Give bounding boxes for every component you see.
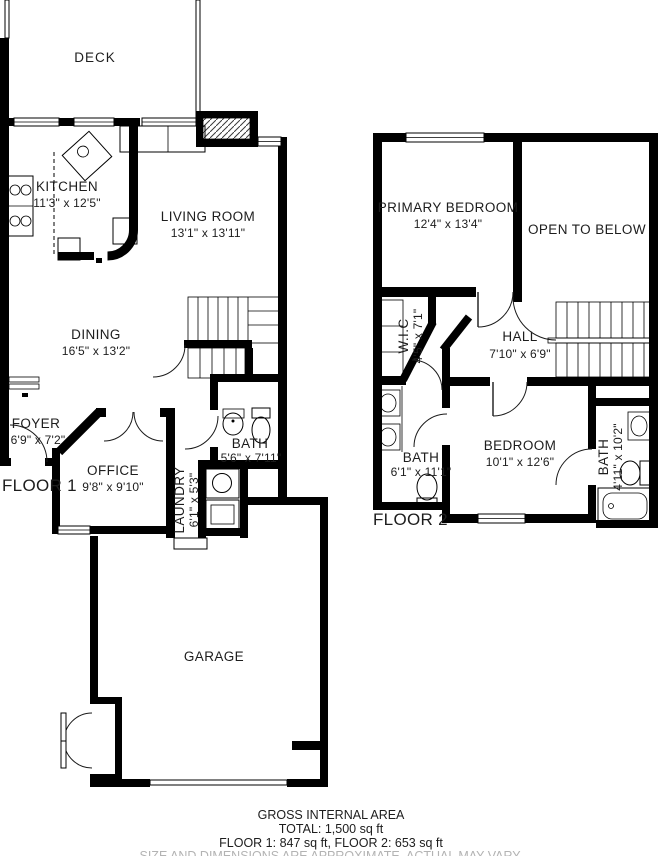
kitchen-label: KITCHEN xyxy=(36,179,98,194)
primary-bedroom-dims: 12'4" x 13'4" xyxy=(414,217,482,231)
washer-icon xyxy=(206,469,239,498)
foyer-label: FOYER xyxy=(12,416,61,431)
bath3-dims: 4'11" x 10'2" xyxy=(611,423,625,491)
floor2-plan: PRIMARY BEDROOM 12'4" x 13'4" OPEN TO BE… xyxy=(373,133,658,529)
sink-icon xyxy=(628,412,650,440)
floor-areas-text: FLOOR 1: 847 sq ft, FLOOR 2: 653 sq ft xyxy=(219,836,443,850)
open-to-below-label: OPEN TO BELOW xyxy=(528,222,646,237)
bath1-label: BATH xyxy=(232,436,269,451)
office-door-left-arc xyxy=(104,412,133,441)
kitchen-sink-icon xyxy=(62,131,112,180)
primary-bedroom-label: PRIMARY BEDROOM xyxy=(378,200,519,215)
floor1-stairs xyxy=(188,297,283,378)
dining-label: DINING xyxy=(71,327,121,342)
dining-dims: 16'5" x 13'2" xyxy=(62,344,130,358)
stair-closet-door-arc xyxy=(153,345,185,377)
sink-icon xyxy=(223,409,244,435)
garage-french-doors xyxy=(61,713,92,768)
floor2-bath-fixtures xyxy=(376,386,437,509)
floor1-title: FLOOR 1 xyxy=(2,476,77,495)
living-room-label: LIVING ROOM xyxy=(161,209,255,224)
laundry-fixtures xyxy=(206,469,239,529)
floor2-title: FLOOR 2 xyxy=(373,510,448,529)
living-room-dims: 13'1" x 13'11" xyxy=(171,226,245,240)
stove-icon xyxy=(8,176,33,236)
wic-door-arc xyxy=(412,360,442,390)
deck-label: DECK xyxy=(74,50,116,65)
garage-label: GARAGE xyxy=(184,649,244,664)
floor2-stairs xyxy=(548,302,650,377)
bedroom-dims: 10'1" x 12'6" xyxy=(486,455,554,469)
bath2-door-arc xyxy=(414,414,447,447)
hall-label: HALL xyxy=(502,329,537,344)
bath2-label: BATH xyxy=(403,450,440,465)
disclaimer-text: SIZE AND DIMENSIONS ARE APPROXIMATE, ACT… xyxy=(140,849,523,856)
footer-area-summary: GROSS INTERNAL AREA TOTAL: 1,500 sq ft F… xyxy=(140,808,523,856)
bath3-door-arc xyxy=(556,449,592,485)
primary-bedroom-door xyxy=(478,292,513,327)
gross-internal-area-title: GROSS INTERNAL AREA xyxy=(258,808,405,822)
floor1-plan: DECK KITCHEN 11'3" x 12'5" LIVING ROOM 1… xyxy=(0,0,328,787)
bedroom-label: BEDROOM xyxy=(484,438,557,453)
bath-door-arc xyxy=(185,416,218,449)
bedroom-door xyxy=(493,382,527,416)
kitchen-dims: 11'3" x 12'5" xyxy=(33,196,101,210)
bath3-label: BATH xyxy=(596,439,611,476)
dryer-icon xyxy=(206,500,239,529)
bath2-dims: 6'1" x 11'1" xyxy=(391,465,452,479)
office-label: OFFICE xyxy=(87,463,139,478)
laundry-label: LAUNDRY xyxy=(172,466,187,533)
bathtub-icon xyxy=(598,488,652,523)
laundry-dims: 6'1" x 5'3" xyxy=(187,473,201,528)
foyer-dims: 6'9" x 7'2" xyxy=(11,433,66,447)
floor1-walls xyxy=(0,38,328,787)
fireplace-hatch xyxy=(203,118,250,139)
hall-dims: 7'10" x 6'9" xyxy=(489,347,551,361)
floor-plan-drawing: DECK KITCHEN 11'3" x 12'5" LIVING ROOM 1… xyxy=(0,0,658,856)
office-dims: 9'8" x 9'10" xyxy=(82,480,144,494)
laundry-step xyxy=(174,538,207,549)
bath1-dims: 5'6" x 7'11" xyxy=(221,451,282,465)
floor-plan-page: DECK KITCHEN 11'3" x 12'5" LIVING ROOM 1… xyxy=(0,0,658,856)
floor1-doors xyxy=(10,345,218,768)
garage-door xyxy=(150,780,287,785)
wic-label: W.I.C xyxy=(396,319,411,354)
wic-dims: 4'5" x 7'1" xyxy=(411,309,425,364)
office-door-right-arc xyxy=(134,412,163,441)
total-area-text: TOTAL: 1,500 sq ft xyxy=(279,822,384,836)
